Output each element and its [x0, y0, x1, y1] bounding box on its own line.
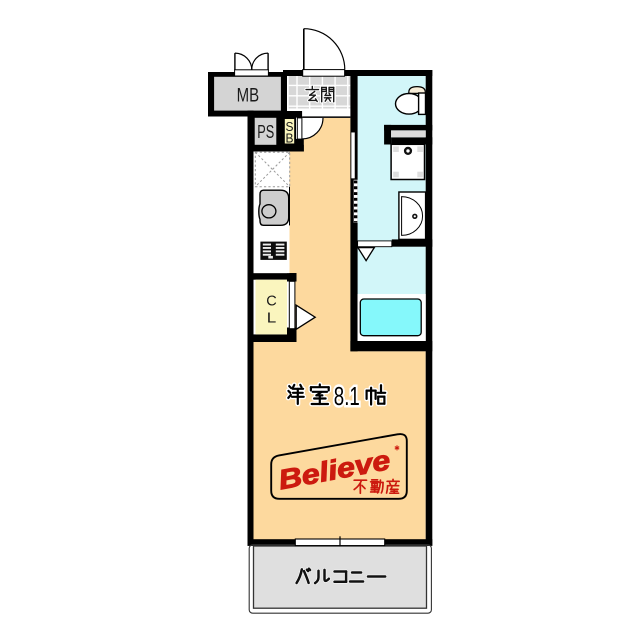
svg-text:L: L: [267, 310, 277, 327]
svg-text:B: B: [286, 130, 294, 145]
svg-text:MB: MB: [237, 86, 260, 107]
svg-text:PS: PS: [257, 121, 274, 142]
svg-text:8.1: 8.1: [334, 381, 360, 411]
svg-text:C: C: [266, 293, 277, 310]
